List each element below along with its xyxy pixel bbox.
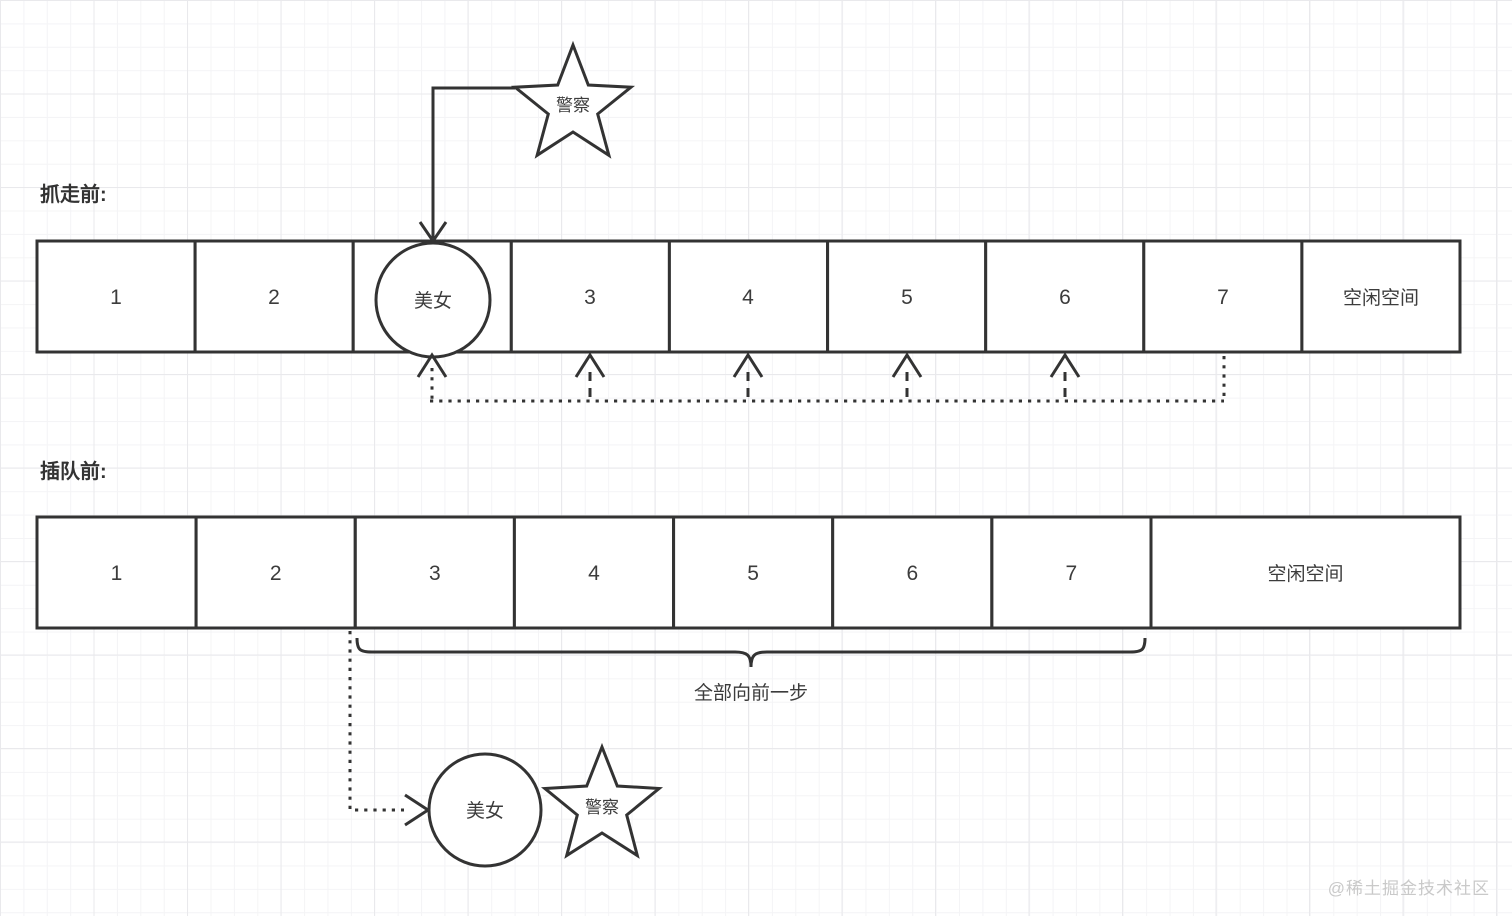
beauty-label-row1: 美女 (414, 290, 452, 312)
cell-value: 5 (747, 562, 759, 585)
beauty-node-row1: 美女 (376, 243, 490, 357)
section-label-before-cut: 插队前: (40, 459, 107, 483)
array-queue-diagram: 抓走前: 警察 1 2 3 4 5 6 7 空闲空间 美女 (0, 0, 1512, 916)
cell-value: 2 (268, 286, 280, 309)
diagram-canvas: 抓走前: 警察 1 2 3 4 5 6 7 空闲空间 美女 (0, 0, 1512, 916)
step-forward-annotation: 全部向前一步 (357, 638, 1145, 704)
shift-forward-path (418, 355, 1224, 401)
watermark-text: @稀土掘金技术社区 (1328, 879, 1490, 898)
connector-line (433, 88, 515, 238)
arrow-right-icon (405, 795, 428, 825)
cell-value: 4 (742, 286, 754, 309)
array-row-2: 1 2 3 4 5 6 7 空闲空间 (37, 517, 1460, 628)
cell-value: 7 (1066, 562, 1078, 585)
beauty-label-bottom: 美女 (466, 800, 504, 822)
police-label-bottom: 警察 (585, 798, 619, 817)
police-label-top: 警察 (556, 96, 590, 115)
array-row-1: 1 2 3 4 5 6 7 空闲空间 美女 (37, 241, 1460, 357)
police-star-top: 警察 (515, 45, 631, 155)
cell-value: 3 (584, 286, 596, 309)
cell-value: 3 (429, 562, 441, 585)
annotation-text: 全部向前一步 (694, 682, 808, 704)
cell-value-free-space: 空闲空间 (1343, 287, 1419, 309)
cell-value: 1 (111, 562, 123, 585)
cell-value: 7 (1217, 286, 1229, 309)
police-star-bottom: 警察 (545, 747, 659, 856)
cell-value: 4 (588, 562, 600, 585)
removed-path-line (350, 631, 404, 810)
beauty-node-bottom: 美女 (429, 754, 541, 866)
cell-value: 6 (1059, 286, 1071, 309)
cell-value: 5 (901, 286, 913, 309)
cell-value-free-space: 空闲空间 (1267, 563, 1343, 585)
section-label-before-taken: 抓走前: (40, 182, 107, 206)
police-to-beauty-connector (420, 88, 515, 241)
cell-value: 1 (110, 286, 122, 309)
beauty-removed-path (350, 631, 428, 825)
curly-brace (357, 638, 1145, 667)
cell-value: 6 (906, 562, 918, 585)
cell-value: 2 (270, 562, 282, 585)
